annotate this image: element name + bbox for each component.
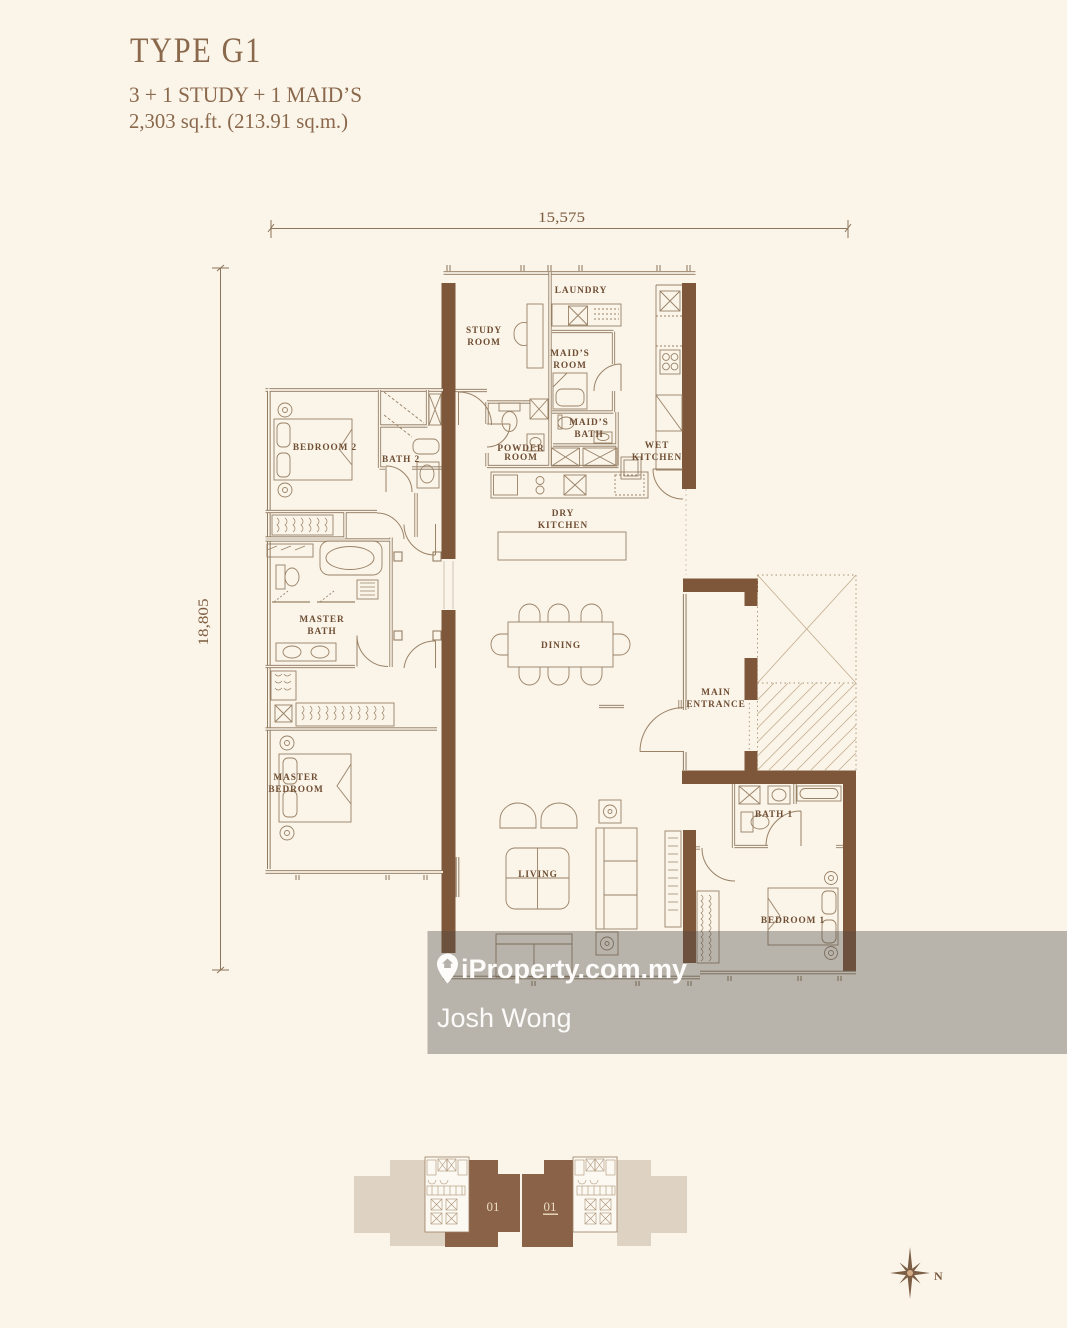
svg-text:ROOM: ROOM <box>467 338 501 348</box>
svg-text:BEDROOM: BEDROOM <box>268 785 323 795</box>
svg-text:iProperty.com.my: iProperty.com.my <box>461 954 687 984</box>
svg-text:15,575: 15,575 <box>538 210 585 226</box>
svg-text:BATH: BATH <box>574 430 603 440</box>
svg-text:18,805: 18,805 <box>196 599 212 646</box>
svg-text:Josh Wong: Josh Wong <box>437 1003 572 1033</box>
svg-text:WET: WET <box>645 441 669 451</box>
svg-text:ROOM: ROOM <box>504 453 538 463</box>
svg-text:LIVING: LIVING <box>518 870 558 880</box>
svg-text:MAID’S: MAID’S <box>569 418 609 428</box>
svg-text:ENTRANCE: ENTRANCE <box>686 700 745 710</box>
svg-text:2,303 sq.ft. (213.91 sq.m.): 2,303 sq.ft. (213.91 sq.m.) <box>129 109 348 133</box>
svg-text:01: 01 <box>544 1199 557 1214</box>
svg-text:BATH 2: BATH 2 <box>382 455 420 465</box>
svg-text:KITCHEN: KITCHEN <box>538 521 588 531</box>
svg-text:DRY: DRY <box>552 509 575 519</box>
svg-text:BATH: BATH <box>307 627 336 637</box>
svg-text:KITCHEN: KITCHEN <box>632 453 682 463</box>
svg-text:MAID’S: MAID’S <box>550 349 590 359</box>
svg-text:MASTER: MASTER <box>299 615 344 625</box>
svg-text:BATH 1: BATH 1 <box>755 810 793 820</box>
svg-text:01: 01 <box>487 1199 500 1214</box>
svg-text:N: N <box>934 1269 943 1283</box>
svg-text:DINING: DINING <box>541 641 581 651</box>
svg-text:MASTER: MASTER <box>273 773 318 783</box>
svg-text:ROOM: ROOM <box>553 361 587 371</box>
svg-text:STUDY: STUDY <box>466 326 502 336</box>
svg-text:MAIN: MAIN <box>701 688 730 698</box>
svg-text:BEDROOM 2: BEDROOM 2 <box>293 443 357 453</box>
svg-text:LAUNDRY: LAUNDRY <box>555 286 607 296</box>
svg-text:TYPE G1: TYPE G1 <box>130 30 262 70</box>
svg-text:3 + 1 STUDY + 1 MAID’S: 3 + 1 STUDY + 1 MAID’S <box>129 82 362 107</box>
svg-text:BEDROOM 1: BEDROOM 1 <box>761 916 825 926</box>
